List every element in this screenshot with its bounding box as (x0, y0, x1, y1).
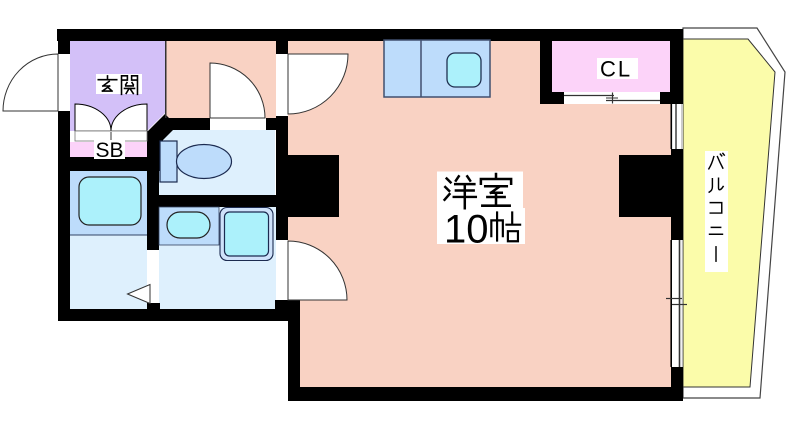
svg-text:10: 10 (444, 208, 489, 252)
svg-text:SB: SB (95, 139, 123, 162)
svg-text:CL: CL (600, 57, 632, 82)
